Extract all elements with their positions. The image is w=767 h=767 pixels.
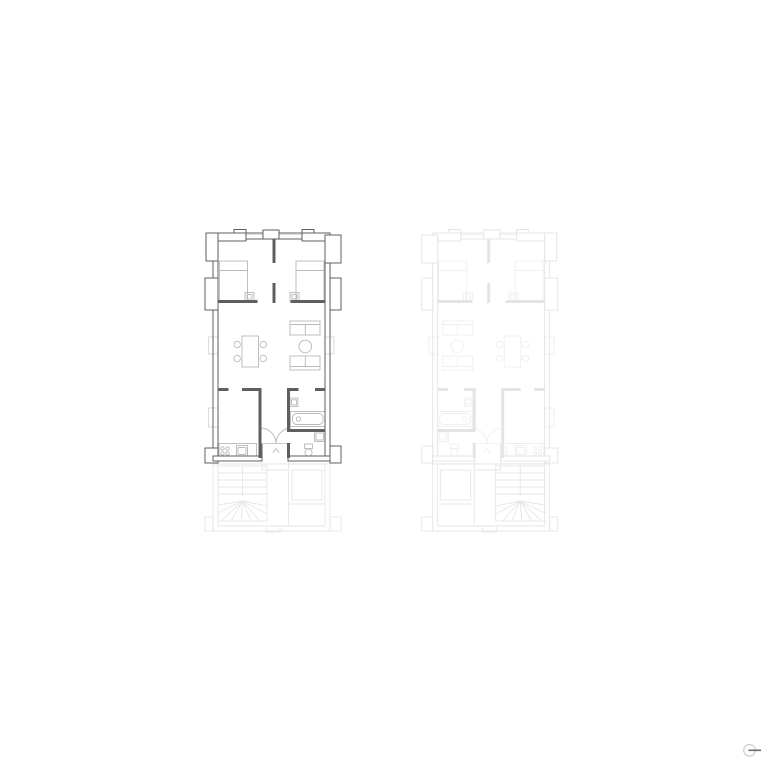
active-lower-floor-layer <box>205 461 341 532</box>
active-walls-layer <box>205 230 341 464</box>
floor-plan-ghost <box>422 230 558 533</box>
ghost-lower-floor-layer <box>422 461 558 532</box>
active-windows-layer <box>209 235 335 428</box>
floor-plan-active <box>205 230 341 533</box>
active-furniture-layer <box>219 261 325 457</box>
ghost-walls-layer <box>422 230 558 464</box>
ghost-furniture-layer <box>438 261 544 457</box>
ghost-windows-layer <box>429 235 555 428</box>
compass-icon <box>744 745 761 757</box>
drawing-sheet <box>0 0 767 767</box>
floor-plan-canvas <box>0 0 767 767</box>
